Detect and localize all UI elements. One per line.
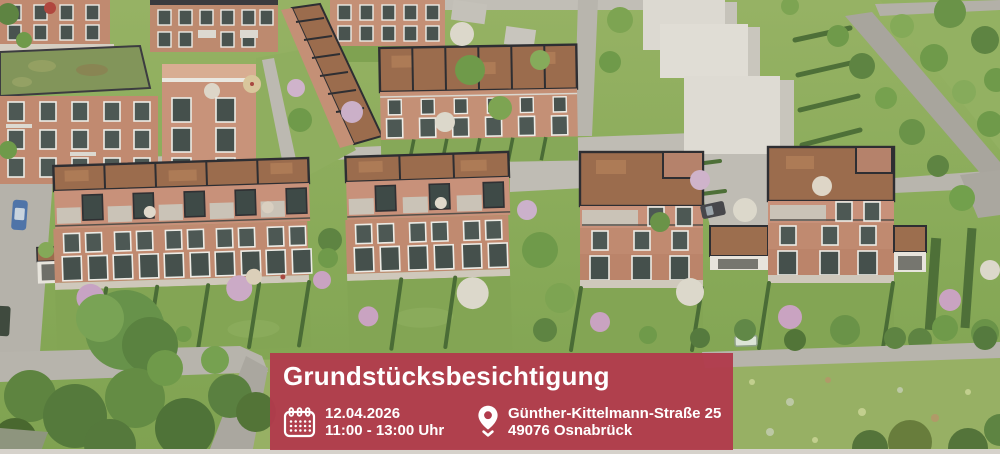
townhouse-row-main-center xyxy=(343,152,514,355)
garages xyxy=(710,226,768,270)
detached-house-left xyxy=(571,152,704,354)
event-banner: Grundstücksbesichtigung 12.04.2026 xyxy=(270,353,733,450)
townhouse-row-main-left xyxy=(34,158,314,356)
red-parasol xyxy=(44,2,56,14)
event-date: 12.04.2026 xyxy=(325,406,444,423)
calendar-icon xyxy=(283,407,316,443)
banner-title: Grundstücksbesichtigung xyxy=(283,361,610,392)
marketing-visual: Grundstücksbesichtigung 12.04.2026 xyxy=(0,0,1000,454)
roof-terrace-parasol xyxy=(812,176,832,196)
banner-info-row: 12.04.2026 11:00 - 13:00 Uhr Günther-Kit… xyxy=(283,405,727,443)
event-city: 49076 Osnabrück xyxy=(508,423,721,440)
location-pin-icon xyxy=(477,405,499,443)
parasol xyxy=(204,83,220,99)
event-time: 11:00 - 13:00 Uhr xyxy=(325,423,444,440)
green-sedum-roof xyxy=(0,46,150,96)
event-street: Günther-Kittelmann-Straße 25 xyxy=(508,406,721,423)
blue-car xyxy=(11,200,28,231)
dark-van xyxy=(0,306,11,337)
event-date-item: 12.04.2026 11:00 - 13:00 Uhr xyxy=(283,405,477,443)
event-location-item: Günther-Kittelmann-Straße 25 49076 Osnab… xyxy=(477,405,721,443)
